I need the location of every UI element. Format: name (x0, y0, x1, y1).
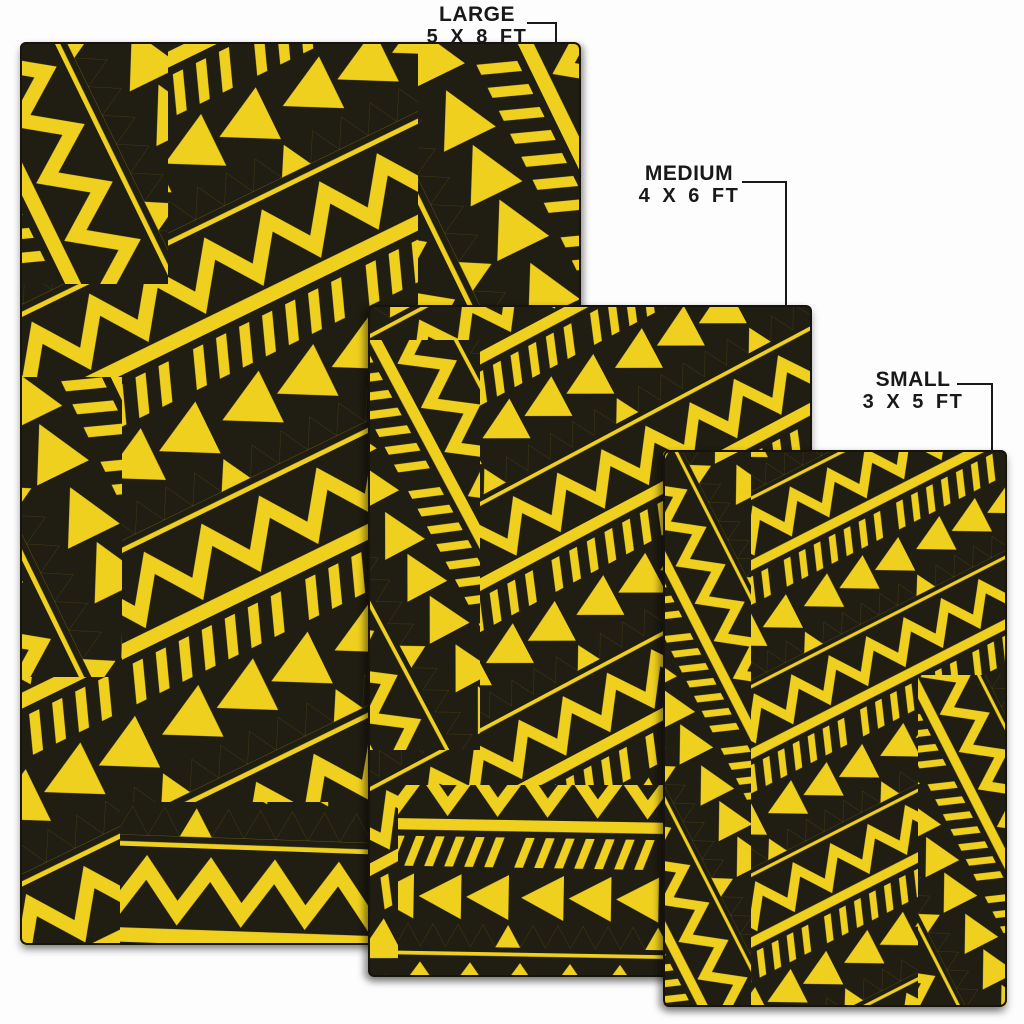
size-name-medium: MEDIUM (604, 162, 774, 185)
size-label-medium: MEDIUM 4 X 6 FT (604, 162, 774, 207)
size-label-small: SMALL 3 X 5 FT (828, 368, 998, 413)
size-name-large: LARGE (392, 3, 562, 26)
size-name-small: SMALL (828, 368, 998, 391)
size-dimensions-medium: 4 X 6 FT (604, 185, 774, 207)
size-dimensions-small: 3 X 5 FT (828, 391, 998, 413)
size-dimensions-large: 5 X 8 FT (392, 26, 562, 48)
size-label-large: LARGE 5 X 8 FT (392, 3, 562, 48)
rug-size-chart: LARGE 5 X 8 FT MEDIUM 4 X 6 FT SMALL 3 X… (0, 0, 1024, 1024)
rug-small-pattern (663, 450, 1007, 1007)
rug-small (663, 450, 1007, 1007)
leader-line-medium-vertical (785, 181, 787, 308)
